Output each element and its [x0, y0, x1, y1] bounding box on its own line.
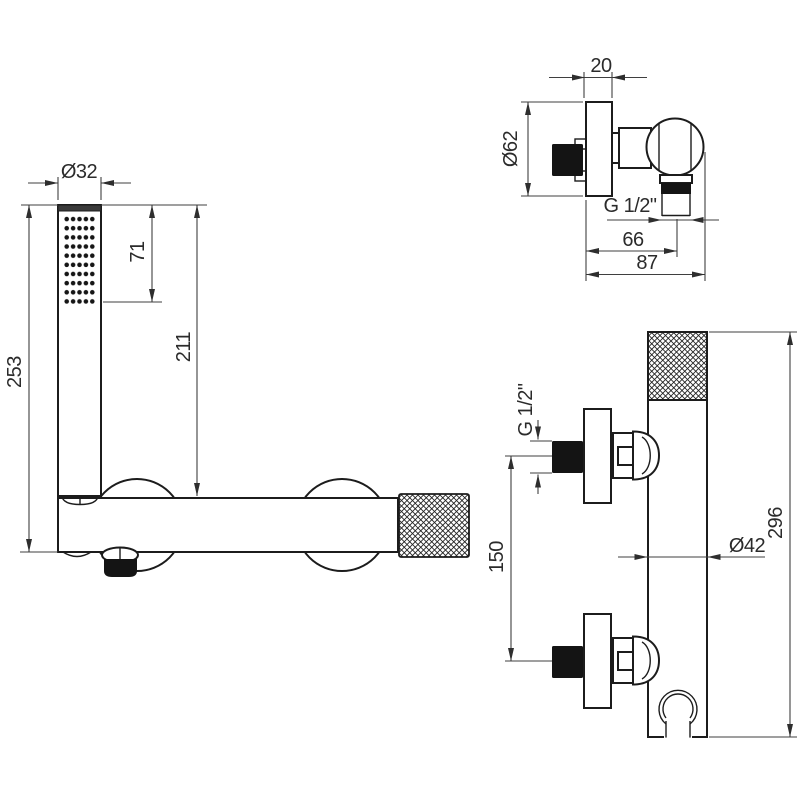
lower-connector-inner	[618, 652, 633, 670]
mixer-bar-side	[58, 498, 398, 552]
bar-front-view: G 1/2" 150 Ø42 296	[486, 332, 797, 739]
valve-handle-sphere	[647, 119, 704, 176]
knurled-knob-side	[399, 494, 469, 557]
spray-nozzles	[64, 215, 96, 305]
holder-cup	[104, 559, 137, 577]
lower-wall-plate	[584, 614, 611, 708]
technical-drawing-canvas: Ø32 71 211 253	[0, 0, 800, 800]
inlet-thread-block	[552, 144, 583, 176]
dim-label-connection-spacing: 150	[486, 541, 508, 573]
wall-rosette-side	[586, 102, 612, 196]
dim-label-inlet-thread: G 1/2"	[515, 383, 537, 436]
knurled-section-front	[648, 332, 707, 400]
dim-label-shower-length: 211	[173, 331, 195, 362]
dim-label-overall-depth: 87	[636, 252, 658, 274]
dim-label-spray-length: 71	[127, 241, 149, 263]
dim-label-outlet-offset: 66	[622, 229, 644, 251]
dim-label-bar-length: 296	[765, 507, 787, 539]
upper-wall-plate	[584, 409, 611, 503]
drawing-page: Ø32 71 211 253	[0, 0, 800, 800]
outlet-collar	[660, 175, 692, 183]
valve-side-view: 20 Ø62 G 1/2" 66 87	[500, 55, 719, 281]
dim-label-head-diameter: Ø32	[61, 161, 98, 183]
dim-label-rosette-depth: 20	[590, 55, 612, 77]
dim-label-outlet-thread: G 1/2"	[603, 195, 656, 217]
outlet-thread-band	[661, 183, 691, 194]
dim-label-overall-height: 253	[4, 356, 26, 388]
upper-thread-block	[552, 441, 583, 473]
dim-label-rosette-diameter: Ø62	[500, 130, 522, 167]
dim-label-bar-diameter: Ø42	[729, 535, 766, 557]
wand-top-cap	[58, 205, 101, 211]
upper-connector-inner	[618, 447, 633, 465]
hand-shower-side-view: Ø32 71 211 253	[4, 161, 469, 577]
lower-thread-block	[552, 646, 583, 678]
